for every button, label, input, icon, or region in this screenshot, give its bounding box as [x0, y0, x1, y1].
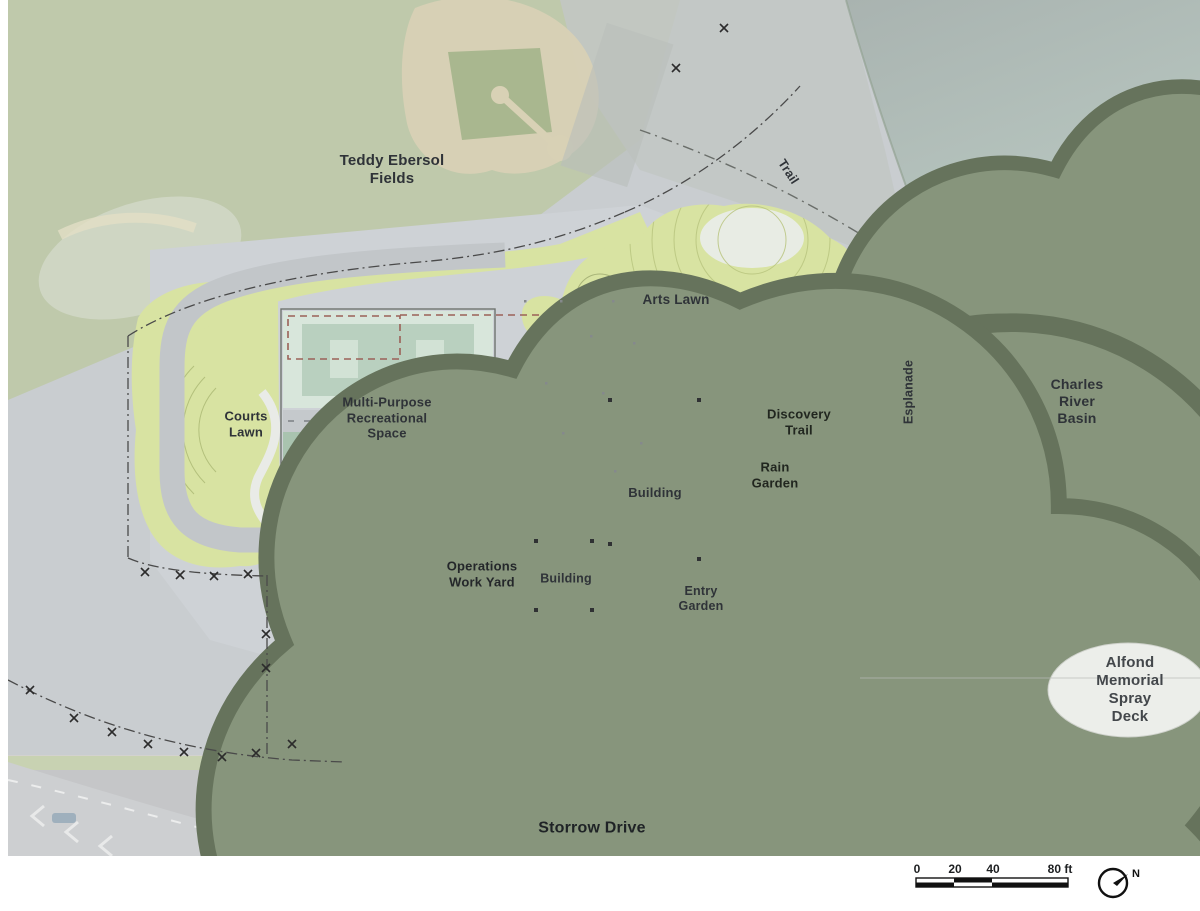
north-label: N — [1132, 868, 1140, 880]
site-plan-map: Teddy Ebersol Fields Trail Arts Lawn Cha… — [0, 0, 1200, 911]
scale-tick-40: 40 — [986, 862, 999, 876]
scale-tick-80ft: 80 ft — [1048, 862, 1073, 876]
site-plan-drawing — [0, 0, 1200, 911]
scale-tick-20: 20 — [948, 862, 961, 876]
scale-bar — [916, 878, 1068, 887]
scale-tick-0: 0 — [914, 862, 921, 876]
